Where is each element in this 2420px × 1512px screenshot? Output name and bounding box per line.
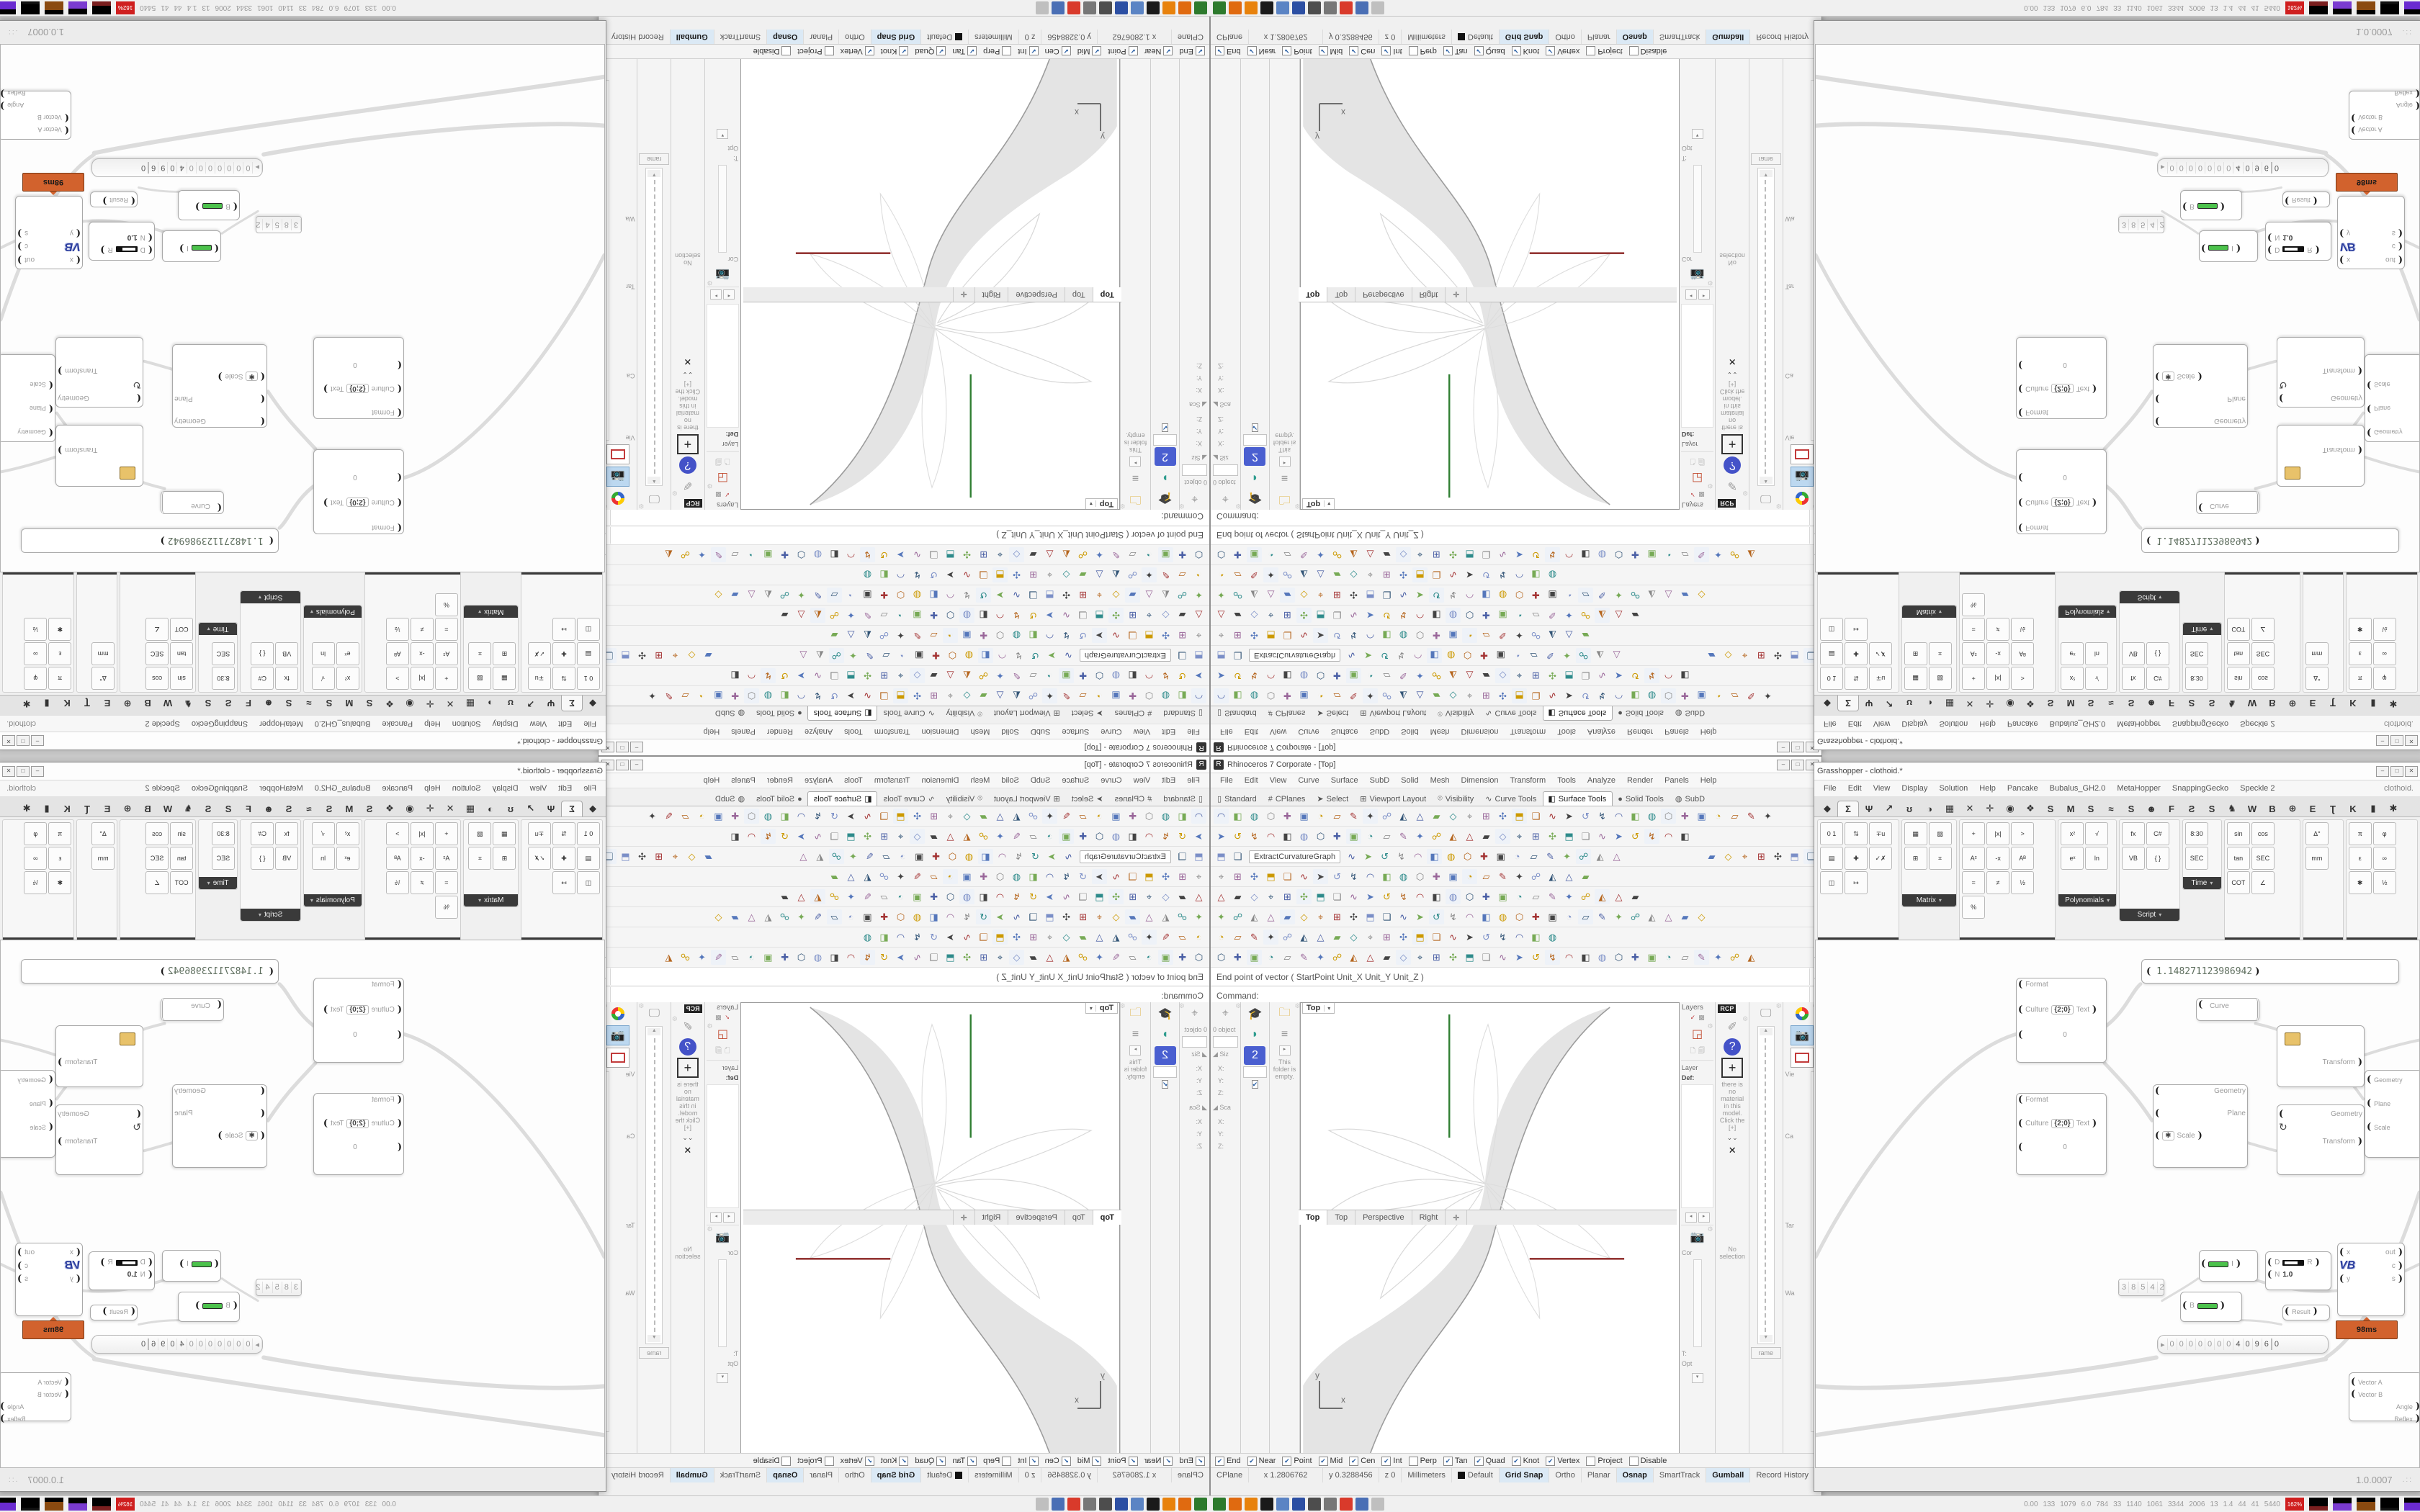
toolbar-icon[interactable]: ✣ xyxy=(1495,688,1510,703)
transform-node[interactable]: Transform) xyxy=(2277,1025,2365,1087)
status-toggle-osnap[interactable]: Osnap xyxy=(1617,1468,1654,1482)
toolbar-icon[interactable]: ☍ xyxy=(1379,688,1394,703)
toolbar-icon[interactable]: ✦ xyxy=(846,648,861,663)
taskbar-icon[interactable] xyxy=(1260,1,1273,14)
minimize-button[interactable]: – xyxy=(2376,736,2389,747)
toolbar-icon[interactable]: △ xyxy=(1191,889,1206,904)
menu-item-mesh[interactable]: Mesh xyxy=(965,726,995,737)
toolbar-icon[interactable]: ∿ xyxy=(1009,909,1024,924)
checkbox-knot[interactable]: ✔ xyxy=(899,47,908,56)
toolbar-icon[interactable]: ◔ xyxy=(1512,608,1527,623)
toolbar-icon[interactable]: ▰ xyxy=(976,809,991,824)
component-button[interactable]: ✓✗ xyxy=(1869,847,1892,870)
menu-item-metahopper[interactable]: MetaHopper xyxy=(254,783,308,794)
toolbar-icon[interactable]: ❏ xyxy=(926,950,941,965)
taskbar-icon[interactable] xyxy=(1355,1498,1368,1511)
gh-tab-sets[interactable]: Ψ xyxy=(541,696,561,711)
resize-grip[interactable]: .:: xyxy=(2403,29,2413,37)
taskbar-icon[interactable] xyxy=(1178,1498,1191,1511)
toolbar-icon[interactable]: ⬒ xyxy=(1191,648,1206,663)
toolbar-icon[interactable]: ◠ xyxy=(943,909,958,924)
checkbox-end[interactable]: ✔ xyxy=(1215,1457,1224,1466)
display-mode-icon[interactable]: 2 xyxy=(1155,1046,1176,1065)
toolbar-icon[interactable]: ◇ xyxy=(711,588,726,603)
viewport-tab-top[interactable]: Top xyxy=(1093,1210,1121,1225)
checkbox-perp[interactable] xyxy=(1409,1457,1418,1466)
toolbar-icon[interactable]: ✣ xyxy=(910,809,925,824)
display-panel[interactable]: 🖵 ▲ ▼ rame xyxy=(1749,58,1783,510)
toolbar-icon[interactable]: ✣ xyxy=(1009,567,1024,582)
scroll-up-icon[interactable]: ▲ xyxy=(1760,1028,1773,1035)
component-button[interactable]: ½ xyxy=(2011,871,2034,894)
toolbar-icon[interactable]: ▱ xyxy=(926,628,941,643)
viewport-rect-button[interactable] xyxy=(1791,444,1814,464)
toolbar-icon[interactable]: ↯ xyxy=(1059,628,1074,643)
training-icon[interactable]: 🎓 xyxy=(1244,1004,1265,1023)
toolbar-icon[interactable]: ∿ xyxy=(959,567,974,582)
toolbar-icon[interactable]: ✚ xyxy=(1528,588,1543,603)
component-button[interactable]: ✚ xyxy=(552,642,575,665)
toolbar-icon[interactable]: ↯ xyxy=(1059,869,1074,884)
gumball-icon[interactable]: ⌖ xyxy=(1214,1004,1236,1023)
toolbar-icon[interactable]: ✎ xyxy=(1543,849,1558,864)
toolbar-icon[interactable]: ◔ xyxy=(895,648,910,663)
toolbar-icon[interactable]: △ xyxy=(1412,688,1428,703)
display-checkbox[interactable]: ✔ xyxy=(1151,1079,1180,1089)
component-button[interactable]: ↦ xyxy=(1845,618,1868,641)
component-button[interactable]: Δ° xyxy=(2305,822,2329,845)
menu-item-snappinggecko[interactable]: SnappingGecko xyxy=(2167,783,2233,794)
curve-param-node[interactable]: (Curve xyxy=(161,998,224,1021)
menu-item-dimension[interactable]: Dimension xyxy=(1456,775,1504,786)
status-toggle-record-history[interactable]: Record History xyxy=(605,1468,670,1482)
toolbar-icon[interactable]: ⬡ xyxy=(1462,889,1477,904)
angle-node[interactable]: (Vector A(Vector BAngle)Reflex) xyxy=(0,1372,71,1421)
component-button[interactable]: 0 1 xyxy=(577,822,600,845)
toolbar-icon[interactable]: ⌖ xyxy=(1737,648,1752,663)
toolbar-icon[interactable]: ✎ xyxy=(1495,628,1510,643)
toolbar-icon[interactable]: ❏ xyxy=(926,547,941,562)
toolbar-icon[interactable]: ⬒ xyxy=(893,688,908,703)
toolbar-icon[interactable]: ▱ xyxy=(1026,829,1041,844)
toolbar-icon[interactable]: ✚ xyxy=(1628,950,1643,965)
extract-curvature-graph-button[interactable]: ExtractCurvatureGraph xyxy=(1249,649,1340,662)
toolbar-icon[interactable]: ▰ xyxy=(1704,849,1719,864)
menu-item-display[interactable]: Display xyxy=(1896,718,1932,729)
toolbar-icon[interactable]: ❏ xyxy=(877,809,892,824)
viewport-title-tab[interactable]: Top ▾ xyxy=(1302,498,1335,509)
toolbar-icon[interactable]: ↺ xyxy=(1330,869,1345,884)
graph-mapper-node[interactable]: (B) xyxy=(2180,190,2242,220)
toolbar-icon[interactable]: ◍ xyxy=(1108,829,1124,844)
toolbar-icon[interactable]: ↯ xyxy=(860,547,875,562)
left-dock-display-panel[interactable]: 🎓 ◗ 2 ✔ xyxy=(1150,1002,1180,1454)
gh-tab-maths[interactable]: Σ xyxy=(561,801,583,816)
toolbar-icon[interactable]: ⬡ xyxy=(1263,809,1278,824)
osnap-cen[interactable]: ✔Cen xyxy=(1349,1457,1375,1466)
angle-node[interactable]: (Vector A(Vector BAngle)Reflex) xyxy=(0,91,71,140)
menu-item-edit[interactable]: Edit xyxy=(1240,775,1263,786)
gh-tab-plugin-s5[interactable]: S xyxy=(198,696,218,711)
toolbar-icon[interactable]: ◔ xyxy=(1263,547,1278,562)
toolbar-icon[interactable]: ⬡ xyxy=(794,547,809,562)
toolbar-icon[interactable]: ◔ xyxy=(893,889,908,904)
status-active-layer[interactable]: Default xyxy=(1452,30,1500,44)
menu-item-transform[interactable]: Transform xyxy=(869,775,915,786)
toolbar-icon[interactable]: ▣ xyxy=(1346,668,1361,683)
help-icon[interactable]: ? xyxy=(1724,1038,1741,1056)
new-layer-icon[interactable]: 🗋 xyxy=(725,455,730,467)
menu-item-render[interactable]: Render xyxy=(1622,726,1658,737)
ribbon-group-label-script[interactable]: Script xyxy=(241,591,300,603)
gh-tab-kangaroo[interactable]: ❖ xyxy=(2020,696,2040,711)
toolbar-icon[interactable]: ✦ xyxy=(694,547,709,562)
toolbar-icon[interactable]: ✦ xyxy=(1760,688,1775,703)
property-input[interactable] xyxy=(1182,1036,1207,1048)
toolbar-icon[interactable]: ▱ xyxy=(1379,668,1394,683)
toolbar-icon[interactable]: ◔ xyxy=(895,849,910,864)
component-button[interactable]: Aᴮ xyxy=(386,642,409,665)
viewport-tab--[interactable]: ✛ xyxy=(1446,287,1467,302)
toolbar-tab-solid-tools[interactable]: ●Solid Tools xyxy=(750,706,807,720)
toolbar-icon[interactable]: ☍ xyxy=(1578,608,1593,623)
ribbon-group-label-matrix[interactable]: Matrix xyxy=(1902,606,1957,618)
component-button[interactable]: > xyxy=(2011,667,2034,690)
toolbar-icon[interactable]: ❏ xyxy=(827,829,842,844)
gh-tab-surface[interactable]: ◑ xyxy=(1919,801,1940,816)
toolbar-icon[interactable]: ◧ xyxy=(1528,930,1543,945)
gh-tab-maths[interactable]: Σ xyxy=(1837,801,1859,816)
status-toggle-gumball[interactable]: Gumball xyxy=(1706,1468,1750,1482)
toolbar-icon[interactable]: ➤ xyxy=(893,950,908,965)
toolbar-icon[interactable]: ▱ xyxy=(926,869,941,884)
checkbox-cen[interactable]: ✔ xyxy=(1349,47,1358,56)
toolbar-icon[interactable]: ✦ xyxy=(1313,950,1328,965)
menu-item-pancake[interactable]: Pancake xyxy=(377,718,418,729)
gh-tab-plugin-b[interactable]: B xyxy=(138,696,158,711)
gh-tab-plugin-f[interactable]: F xyxy=(2161,696,2182,711)
toolbar-icon[interactable]: ❏ xyxy=(1330,889,1345,904)
toolbar-icon[interactable]: ⌖ xyxy=(893,829,908,844)
toolbar-icon[interactable]: ▰ xyxy=(1379,547,1394,562)
component-button[interactable]: ½ xyxy=(386,871,409,894)
close-icon[interactable]: ✕ xyxy=(1716,354,1749,369)
toolbar-icon[interactable]: ◭ xyxy=(1595,889,1610,904)
gh-tab-sets[interactable]: Ψ xyxy=(541,801,561,816)
plane-scale-node[interactable]: (Geometry(Plane(Scale xyxy=(2365,354,2420,442)
menu-item-edit[interactable]: Edit xyxy=(1843,783,1867,794)
toolbar-icon[interactable]: ✣ xyxy=(1247,869,1262,884)
toolbar-icon[interactable]: ∿ xyxy=(1009,588,1024,603)
camera-button[interactable]: 📷 xyxy=(1791,1025,1814,1045)
toolbar-icon[interactable]: ◭ xyxy=(1009,809,1024,824)
new-layer-icon[interactable]: 🗋 xyxy=(1690,1045,1695,1057)
taskbar-icon[interactable] xyxy=(1083,1498,1096,1511)
toolbar-icon[interactable]: ◇ xyxy=(1009,547,1024,562)
toolbar-icon[interactable]: ∿ xyxy=(910,950,925,965)
checkbox-near[interactable]: ✔ xyxy=(1247,1457,1257,1466)
taskbar-icon[interactable] xyxy=(1340,1,1353,14)
result-node[interactable]: (Result) xyxy=(2282,192,2330,207)
remap-node[interactable]: (I) xyxy=(2199,230,2258,262)
toolbar-icon[interactable]: ▣ xyxy=(1545,909,1560,924)
gh-tab-plugin-f[interactable]: F xyxy=(238,801,259,816)
toolbar-icon[interactable]: ⌖ xyxy=(1313,588,1328,603)
toolbar-tab-solid-tools[interactable]: ●Solid Tools xyxy=(1613,706,1670,720)
toolbar-icon[interactable]: ⬒ xyxy=(1561,668,1577,683)
toolbar-icon[interactable]: ↯ xyxy=(1394,849,1409,864)
toolbar-icon[interactable]: ◭ xyxy=(661,950,676,965)
toolbar-icon[interactable]: ✎ xyxy=(1059,688,1074,703)
gh-tab-curve[interactable]: ʊ xyxy=(1899,801,1919,816)
toolbar-icon[interactable]: ◠ xyxy=(1611,688,1626,703)
vb-script-node[interactable]: (xout)VBc)(ys) xyxy=(2337,196,2405,269)
toolbar-icon[interactable]: ∿ xyxy=(1108,869,1124,884)
osnap-mid[interactable]: ✔Mid xyxy=(1319,1457,1343,1466)
toolbar-icon[interactable]: ◠ xyxy=(1462,588,1477,603)
checkbox-vertex[interactable]: ✔ xyxy=(865,1457,874,1466)
digit-cells-node[interactable]: 38542 xyxy=(256,1279,302,1296)
display-checkbox[interactable]: ✔ xyxy=(1151,423,1180,433)
rcp-tab[interactable]: RCP xyxy=(684,499,702,508)
toolbar-icon[interactable]: ⬒ xyxy=(843,668,859,683)
toolbar-icon[interactable]: ▣ xyxy=(1059,668,1074,683)
toolbar-icon[interactable]: ◧ xyxy=(877,567,892,582)
toolbar-icon[interactable]: ⬒ xyxy=(618,849,633,864)
osnap-vertex[interactable]: ✔Vertex xyxy=(1546,47,1579,56)
menu-item-help[interactable]: Help xyxy=(419,718,446,729)
layer-pin-icon[interactable]: ✓ xyxy=(725,490,730,498)
toolbar-icon[interactable]: ▰ xyxy=(727,588,743,603)
toolbar-icon[interactable]: ▱ xyxy=(1280,547,1295,562)
toolbar-icon[interactable]: ◭ xyxy=(1644,909,1659,924)
toolbar-tab-subd[interactable]: ◍SubD xyxy=(709,706,750,721)
toolbar-icon[interactable]: ⬒ xyxy=(1142,628,1157,643)
status-toggle-grid-snap[interactable]: Grid Snap xyxy=(871,1468,921,1482)
properties-scrollbar[interactable] xyxy=(1693,165,1702,253)
checkbox-tan[interactable]: ✔ xyxy=(967,1457,977,1466)
ribbon-group-label-time[interactable]: Time xyxy=(2183,877,2221,889)
layer-list[interactable] xyxy=(707,1084,740,1208)
component-button[interactable]: Aᴮ xyxy=(386,847,409,870)
gh-tab-vector[interactable]: ↗ xyxy=(521,801,541,816)
toolbar-icon[interactable]: ◧ xyxy=(1578,547,1593,562)
toolbar-icon[interactable]: ◧ xyxy=(1175,809,1190,824)
toolbar-icon[interactable]: ⬒ xyxy=(1512,809,1527,824)
toolbar-icon[interactable]: ⌖ xyxy=(1363,567,1378,582)
gh-tab-plugin-s2[interactable]: S xyxy=(319,801,339,816)
curve-param-node[interactable]: (Curve xyxy=(2196,491,2259,514)
toolbar-icon[interactable]: ◇ xyxy=(1694,588,1709,603)
status-active-layer[interactable]: Default xyxy=(920,30,968,44)
toolbar-icon[interactable]: ◧ xyxy=(827,950,842,965)
format-panel-node[interactable]: (Format(Culture{2;0}Text)(0 xyxy=(313,337,404,419)
component-button[interactable]: 8:30 xyxy=(2185,822,2208,845)
result-node[interactable]: (Result) xyxy=(90,192,138,207)
osnap-end[interactable]: ✔End xyxy=(1215,1457,1241,1466)
component-button[interactable]: ⊞ xyxy=(493,847,516,870)
collapse-chevrons[interactable]: ⌄⌄ xyxy=(671,1133,704,1143)
toolbar-icon[interactable]: ⊞ xyxy=(1330,588,1345,603)
toolbar-icon[interactable]: ▰ xyxy=(1125,909,1140,924)
toolbar-icon[interactable]: ❏ xyxy=(976,930,991,945)
component-button[interactable]: ∠ xyxy=(2251,871,2275,894)
viewport-tab--[interactable]: ✛ xyxy=(1446,1210,1467,1225)
toolbar-icon[interactable]: ◭ xyxy=(1744,950,1759,965)
rhino-titlebar[interactable]: R Rhinoceros 7 Corporate - [Top] –□✕ xyxy=(599,757,1209,773)
grasshopper-canvas[interactable]: (1.148271123986942)(Format(Culture{2;0}T… xyxy=(1815,44,2420,572)
left-dock-properties-panel[interactable]: ⌖ 0 object ◢ Siz X: Y: Z: ◢ Sca X: Y: Z: xyxy=(1179,1002,1209,1454)
checkbox-vertex[interactable]: ✔ xyxy=(1546,1457,1555,1466)
toolbar-icon[interactable]: ☍ xyxy=(1628,588,1643,603)
graph-mapper-node[interactable]: (B) xyxy=(178,1292,240,1322)
component-button[interactable]: SEC xyxy=(2185,642,2208,665)
gh-tab-plugin-w[interactable]: W xyxy=(158,801,178,816)
menu-item-file[interactable]: File xyxy=(1182,726,1205,737)
menu-item-view[interactable]: View xyxy=(1265,726,1292,737)
toolbar-icon[interactable]: ▱ xyxy=(1330,809,1345,824)
toolbar-icon[interactable]: ⬒ xyxy=(1142,869,1157,884)
toolbar-icon[interactable]: ↯ xyxy=(1394,648,1409,663)
toolbar-icon[interactable]: ⬡ xyxy=(893,588,908,603)
toolbar-icon[interactable]: ☍ xyxy=(1125,567,1140,582)
ribbon-group-label-matrix[interactable]: Matrix xyxy=(464,606,519,618)
toolbar-icon[interactable]: ➤ xyxy=(1214,668,1229,683)
gh-tab-intersect[interactable]: ✕ xyxy=(440,696,460,711)
toolbar-icon[interactable]: ➤ xyxy=(1191,668,1206,683)
toolbar-icon[interactable]: ⬒ xyxy=(1363,588,1378,603)
component-button[interactable]: √ xyxy=(2085,667,2108,690)
toolbar-icon[interactable]: ✣ xyxy=(635,648,650,663)
toolbar-icon[interactable]: ◔ xyxy=(694,688,709,703)
gh-tab-plugin-wave[interactable]: ≈ xyxy=(299,696,319,711)
checkbox-vertex[interactable]: ✔ xyxy=(865,47,874,56)
toolbar-icon[interactable]: ✚ xyxy=(1125,809,1140,824)
checkbox-int[interactable]: ✔ xyxy=(1381,47,1391,56)
add-material-button[interactable]: + xyxy=(677,1058,699,1078)
gh-tab-plugin-star[interactable]: ✱ xyxy=(2383,696,2403,711)
toolbar-icon[interactable]: ❏ xyxy=(1578,668,1593,683)
range-node[interactable]: (DR)(N1.0 xyxy=(89,1251,155,1290)
checkbox-int[interactable]: ✔ xyxy=(1029,1457,1039,1466)
toolbar-icon[interactable]: ✣ xyxy=(1108,889,1124,904)
display-input[interactable] xyxy=(1153,434,1178,446)
toolbar-icon[interactable]: ❏ xyxy=(1175,648,1190,663)
toolbar-icon[interactable]: ✚ xyxy=(928,648,944,663)
toolbar-icon[interactable]: ◧ xyxy=(1479,588,1494,603)
toolbar-icon[interactable]: ◔ xyxy=(1313,688,1328,703)
component-button[interactable]: ½ xyxy=(2373,618,2396,641)
toolbar-icon[interactable]: △ xyxy=(1661,909,1676,924)
taskbar-icon[interactable] xyxy=(1245,1498,1258,1511)
minimize-button[interactable]: – xyxy=(630,760,643,770)
toolbar-icon[interactable]: ☍ xyxy=(777,909,792,924)
toolbar-icon[interactable]: ➤ xyxy=(1214,829,1229,844)
toolbar-icon[interactable]: △ xyxy=(1611,889,1626,904)
toolbar-icon[interactable]: ↯ xyxy=(959,588,974,603)
ribbon-group-label-matrix[interactable]: Matrix xyxy=(1902,894,1957,906)
toolbar-icon[interactable]: ∿ xyxy=(1396,909,1411,924)
toolbar-icon[interactable]: △ xyxy=(796,849,811,864)
toolbar-icon[interactable]: ◭ xyxy=(812,849,828,864)
toolbar-icon[interactable]: ▱ xyxy=(727,950,743,965)
toolbar-icon[interactable]: ⬒ xyxy=(1042,909,1057,924)
toolbar-icon[interactable]: ✎ xyxy=(1009,668,1024,683)
toolbar-icon[interactable]: ✎ xyxy=(1744,809,1759,824)
toolbar-icon[interactable]: ◧ xyxy=(727,829,743,844)
expand-button[interactable]: ▸ xyxy=(1279,1045,1291,1056)
toolbar-icon[interactable]: ▰ xyxy=(1280,588,1295,603)
rotate-transform-node[interactable]: (Geometry ↻Transform) xyxy=(55,1104,143,1175)
toolbar-icon[interactable]: ⬒ xyxy=(1042,588,1057,603)
collapse-chevrons[interactable]: ⌄⌄ xyxy=(1716,369,1749,379)
toolbar-icon[interactable]: ✎ xyxy=(1595,909,1610,924)
toolbar-icon[interactable]: △ xyxy=(1609,849,1624,864)
minimize-button[interactable]: – xyxy=(630,742,643,753)
collapse-chevrons[interactable]: ⌄⌄ xyxy=(671,369,704,379)
toolbar-icon[interactable]: ⬡ xyxy=(744,809,759,824)
toolbar-icon[interactable]: ◍ xyxy=(1644,688,1659,703)
toolbar-icon[interactable]: ✣ xyxy=(1396,930,1411,945)
toolbar-icon[interactable]: ✦ xyxy=(1313,547,1328,562)
scale-node[interactable]: (Geometry(Plane(✱Scale) xyxy=(172,344,267,428)
color-wheel-icon[interactable] xyxy=(607,489,629,508)
ribbon-group-label-polynomials[interactable]: Polynomials xyxy=(304,894,361,906)
toolbar-icon[interactable]: ☍ xyxy=(976,829,991,844)
component-button[interactable]: = xyxy=(435,618,458,641)
toolbar-icon[interactable]: ✎ xyxy=(661,688,676,703)
taskbar-icon[interactable] xyxy=(1340,1498,1353,1511)
toolbar-icon[interactable]: ▣ xyxy=(912,849,927,864)
component-button[interactable]: ln xyxy=(2085,847,2108,870)
toolbar-tab-cplanes[interactable]: #CPlanes xyxy=(1108,792,1157,806)
checkbox-point[interactable]: ✔ xyxy=(1282,47,1291,56)
toolbar-icon[interactable]: ✣ xyxy=(1770,648,1785,663)
toolbar-icon[interactable]: ✣ xyxy=(1059,909,1074,924)
gh-tab-plugin-e[interactable]: E xyxy=(2303,696,2323,711)
toolbar-icon[interactable]: ↺ xyxy=(1628,668,1643,683)
toolbar-tab-select[interactable]: ➤Select xyxy=(1312,706,1355,721)
toolbar-icon[interactable]: ↺ xyxy=(1075,869,1090,884)
toolbar-icon[interactable]: ◇ xyxy=(1158,608,1173,623)
component-button[interactable]: tan xyxy=(2227,642,2250,665)
toolbar-icon[interactable]: ◭ xyxy=(1158,909,1173,924)
checkbox-mid[interactable]: ✔ xyxy=(1319,1457,1328,1466)
menu-item-render[interactable]: Render xyxy=(762,726,798,737)
folder-icon[interactable]: 🗀 xyxy=(1274,1004,1296,1023)
osnap-project[interactable]: Project xyxy=(797,47,833,56)
component-button[interactable]: tan xyxy=(170,642,193,665)
result-node[interactable]: (Result) xyxy=(90,1305,138,1320)
toolbar-icon[interactable]: ▱ xyxy=(1379,829,1394,844)
toolbar-icon[interactable]: ◍ xyxy=(1296,829,1312,844)
menu-item-file[interactable]: File xyxy=(578,718,601,729)
gh-tab-plugin-e[interactable]: E xyxy=(97,801,117,816)
expand-button[interactable]: ▸ xyxy=(1279,456,1291,467)
toolbar-tab-viewport-layout[interactable]: ⊞Viewport Layout xyxy=(1355,706,1433,721)
toolbar-icon[interactable]: ✦ xyxy=(1760,809,1775,824)
menu-item-subd[interactable]: SubD xyxy=(1026,726,1056,737)
toolbar-icon[interactable]: ☍ xyxy=(877,628,892,643)
menu-item-curve[interactable]: Curve xyxy=(1095,775,1126,786)
toolbar-icon[interactable]: ◠ xyxy=(1661,829,1676,844)
toolbar-icon[interactable]: ⬡ xyxy=(1412,628,1428,643)
color-wheel-icon[interactable] xyxy=(607,1004,629,1023)
taskbar-icon[interactable] xyxy=(1178,1,1191,14)
toolbar-icon[interactable]: ▰ xyxy=(1075,567,1090,582)
component-button[interactable]: ∓u xyxy=(528,822,551,845)
osnap-tan[interactable]: ✔Tan xyxy=(1443,47,1468,56)
